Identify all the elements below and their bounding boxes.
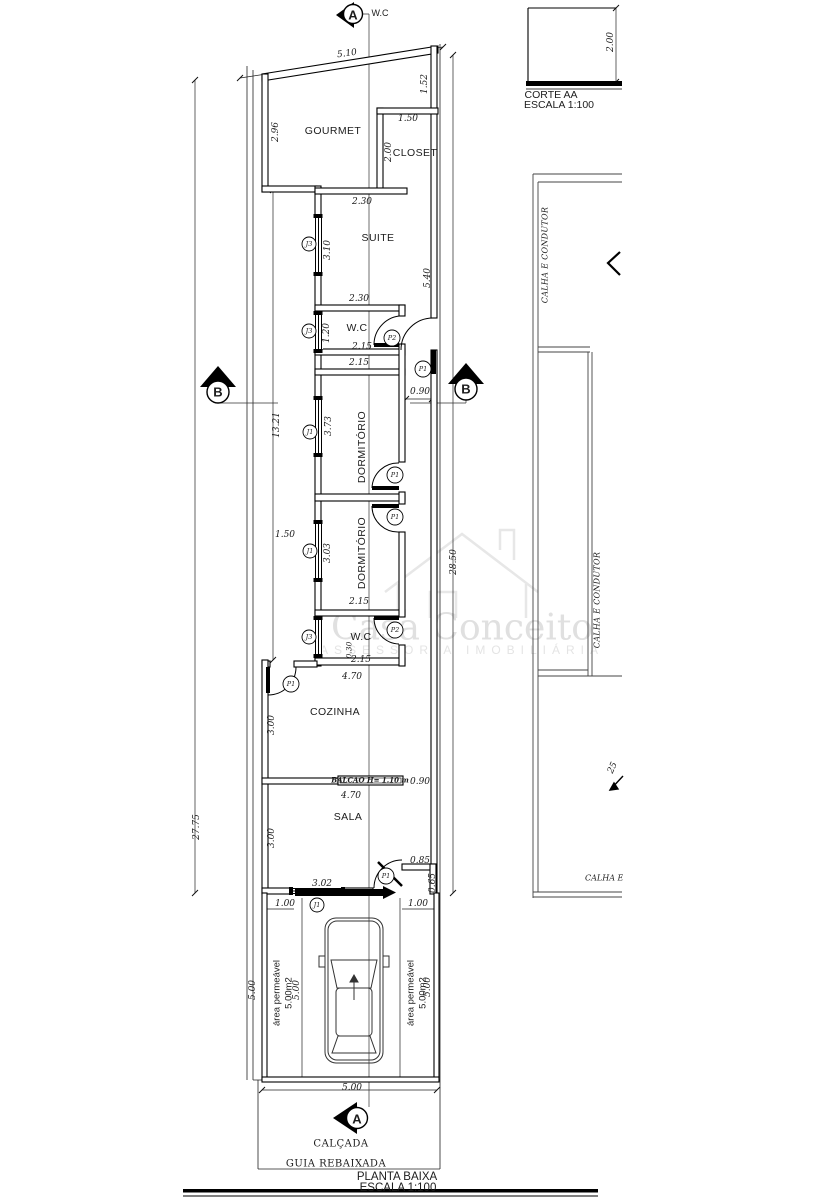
dim-suite-right: 5.40 (423, 268, 433, 288)
room-label-cozinha: COZINHA (310, 706, 360, 718)
dim-front-door: 0.85 (410, 856, 430, 866)
balcao-label: BALCÃO H= 1.10 m (331, 776, 409, 785)
plan-scale: ESCALA 1:100 (360, 1182, 437, 1194)
dim-top-width: 5.10 (336, 48, 357, 61)
dim-front-right: 1.00 (408, 899, 428, 909)
dim-garage-width: 5.00 (342, 1083, 362, 1093)
door-tag-p1-sala: P1 (382, 872, 391, 880)
dim-lot-depth-left: 27.75 (192, 814, 202, 840)
dim-house-depth-right: 28.50 (449, 549, 459, 575)
dim-sala-front: 3.02 (312, 879, 332, 889)
dim-front-left: 1.00 (275, 899, 295, 909)
dim-passage-length: 13.21 (272, 412, 282, 438)
dim-dorm1-top: 2.15 (349, 358, 369, 368)
window-tag-j3-wc1: J3 (306, 327, 313, 335)
dim-garage-depth-2: 5.00 (292, 980, 302, 1000)
room-label-suite: SUITE (362, 232, 395, 244)
dim-closet-width: 1.50 (398, 114, 418, 124)
dim-dorm2-offset: 1.50 (275, 530, 295, 540)
labels-layer: GOURMETCLOSETSUITEW.CDORMITÓRIODORMITÓRI… (0, 0, 817, 1200)
dim-wc1-left: 1.20 (322, 323, 332, 343)
floor-plan-page: Casa Conceito ASSESSORIA IMOBILIÁRIA (0, 0, 817, 1200)
dim-corte-height: 2.00 (606, 32, 616, 52)
window-tag-j3-suite: J3 (306, 240, 313, 248)
door-tag-p1-cozinha: P1 (287, 680, 296, 688)
marker-a-top-letter: A (348, 8, 357, 23)
dim-dorm2-left: 3.03 (323, 543, 333, 563)
dim-balcao-pass: 0.90 (410, 777, 430, 787)
dim-wc2-width: 2.15 (351, 655, 371, 665)
dim-hall-width: 0.90 (410, 387, 430, 397)
dim-cozinha-left: 3.00 (267, 715, 277, 735)
dim-garage-depth-1: 5.00 (248, 980, 258, 1000)
door-tag-p1-dorm2: P1 (391, 513, 400, 521)
dim-cozinha-top: 4.70 (342, 672, 362, 682)
room-label-sala: SALA (334, 811, 362, 823)
dim-suite-bottom: 2.30 (349, 294, 369, 304)
marker-b-right-letter: B (461, 382, 470, 397)
door-tag-p2-wc2: P2 (391, 626, 400, 634)
marker-a-bottom-letter: A (352, 1112, 361, 1127)
door-tag-p2-wc1: P2 (388, 334, 397, 342)
room-label-wc-2: W.C (350, 631, 371, 643)
dim-closet-depth: 2.00 (384, 142, 394, 162)
door-tag-p1-hall: P1 (419, 365, 428, 373)
guia-rebaixada-label: GUIA REBAIXADA (286, 1159, 386, 1170)
window-tag-j1-dorm1: J1 (307, 428, 314, 436)
room-label-gourmet: GOURMET (305, 125, 361, 137)
dim-garage-depth-3: 5.00 (423, 977, 433, 997)
room-label-wc-suite: W.C (346, 322, 367, 334)
dim-suite-left: 3.10 (323, 240, 333, 260)
roof-calha-bottom: CALHA E CONDUTOR (585, 874, 623, 883)
room-label-dormitorio-1: DORMITÓRIO (356, 411, 368, 483)
dim-right-top: 1.52 (420, 74, 430, 94)
dim-gourmet-left: 2.96 (271, 122, 281, 142)
area-permeavel-left-line1: área permeável (272, 960, 283, 1026)
room-label-dormitorio-2: DORMITÓRIO (356, 517, 368, 589)
window-tag-j1-front: J1 (314, 901, 321, 909)
roof-calha-mid: CALHA E CONDUTOR (593, 552, 602, 648)
dim-dorm2-bottom: 2.15 (349, 597, 369, 607)
window-tag-j3-wc2: J3 (306, 633, 313, 641)
corte-scale: ESCALA 1:100 (524, 99, 594, 111)
window-tag-j1-dorm2: J1 (307, 547, 314, 555)
calcada-label: CALÇADA (313, 1139, 368, 1150)
dim-sala-top: 4.70 (341, 791, 361, 801)
roof-slope-value: 25 (606, 761, 620, 776)
dim-wc1-width: 2.15 (352, 342, 372, 352)
roof-calha-top: CALHA E CONDUTOR (541, 207, 550, 303)
dim-sala-left: 3.00 (267, 828, 277, 848)
dim-suite-top: 2.30 (352, 197, 372, 207)
door-tag-p1-dorm1: P1 (391, 471, 400, 479)
dim-dorm1-left: 3.73 (324, 416, 334, 436)
section-a-top-text: W.C (372, 8, 389, 18)
marker-b-left-letter: B (213, 385, 222, 400)
room-label-closet: CLOSET (393, 147, 437, 159)
dim-front-jog: 0.65 (428, 873, 438, 893)
area-permeavel-right-line1: área permeável (406, 960, 417, 1026)
